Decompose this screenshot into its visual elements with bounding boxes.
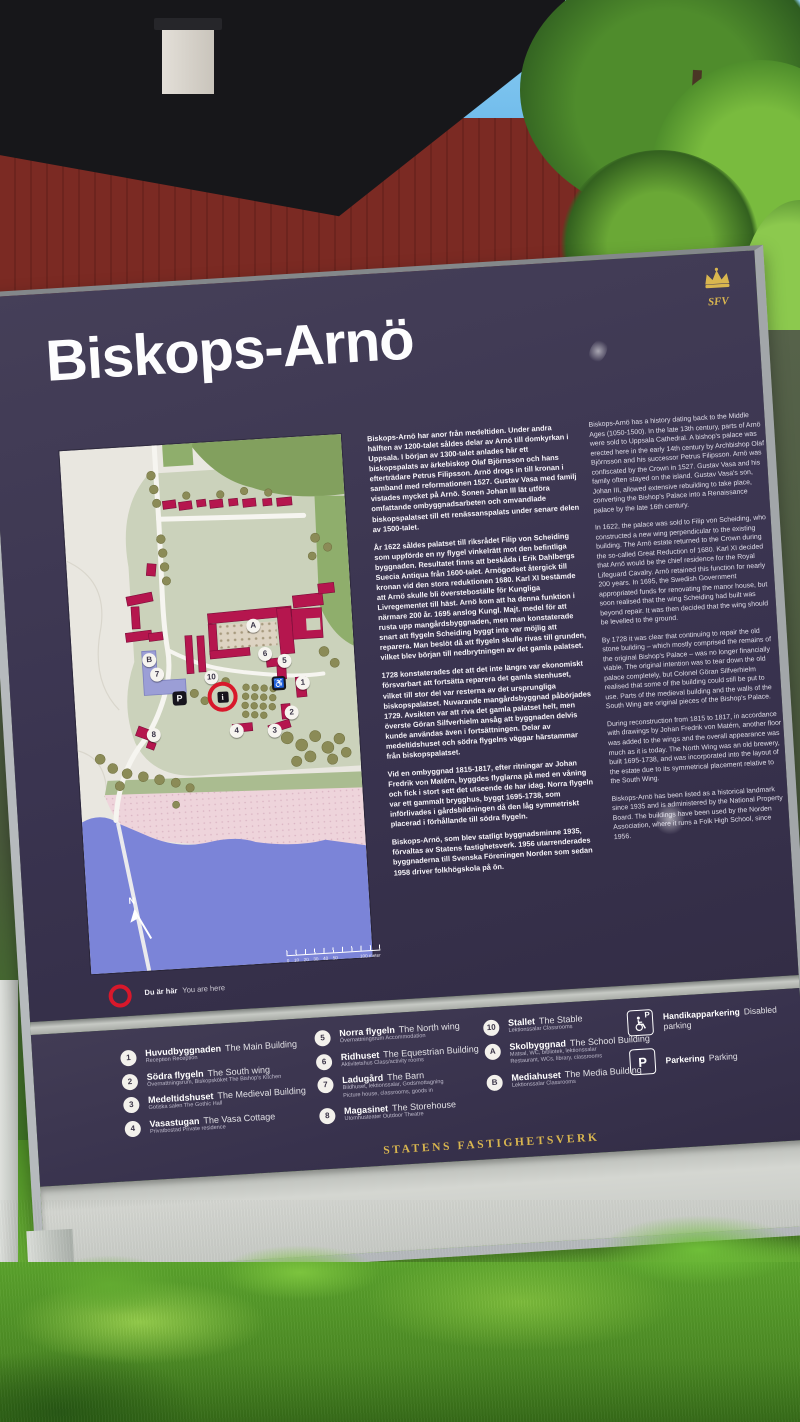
chimney-cap	[154, 18, 222, 30]
compass-n-label: N	[128, 895, 135, 905]
scale-tick-label: 20	[303, 956, 308, 961]
paragraph: Biskops-Arnö har anor från medeltiden. U…	[367, 422, 581, 535]
swedish-text-column: Biskops-Arnö har anor från medeltiden. U…	[367, 422, 602, 886]
legend-item: 5 Norra flygelnThe North wing Övernattni…	[314, 1020, 478, 1047]
grass-tuft	[600, 1215, 800, 1285]
legend-item: A SkolbyggnadThe School Building Matsal,…	[484, 1033, 651, 1068]
chimney	[162, 30, 214, 94]
legend-badge: 3	[123, 1097, 140, 1114]
disabled-parking-row: P HandikapparkeringDisabled parking	[627, 1000, 800, 1037]
scale-tick-label: 50	[333, 955, 338, 960]
photo-of-information-sign: Biskops-Arnö SFV	[0, 0, 800, 1422]
scale-tick-label: 40	[323, 955, 328, 960]
legend-item: 8 MagasinetThe Storehouse Utomhusteater …	[319, 1098, 483, 1125]
legend-column-1: 1 HuvudbyggnadenThe Main Building Recept…	[120, 1038, 308, 1143]
legend-column-2: 5 Norra flygelnThe North wing Övernattni…	[314, 1020, 483, 1132]
paragraph: Biskops-Arnö has a history dating back t…	[588, 410, 767, 516]
grass-tuft	[220, 1245, 380, 1300]
sign-main-panel: Biskops-Arnö SFV	[0, 250, 799, 1022]
legend-badge: A	[484, 1043, 501, 1060]
map-marker: P	[172, 691, 187, 706]
disabled-parking-label: HandikapparkeringDisabled parking	[663, 1003, 800, 1031]
scratch-mark	[585, 336, 611, 366]
map-block: N B 7 8 A 6	[59, 434, 377, 1016]
legend-item: B MediahusetThe Media Building Lektionss…	[486, 1064, 652, 1092]
legend-badge: 4	[124, 1120, 141, 1137]
paragraph: Biskops-Arnö, som blev statligt byggnads…	[392, 825, 602, 878]
english-text-column: Biskops-Arnö has a history dating back t…	[588, 410, 788, 850]
information-sign: Biskops-Arnö SFV	[0, 245, 800, 1282]
parking-row: P ParkeringParking	[629, 1039, 800, 1076]
crown-icon	[699, 266, 735, 294]
legend-badge: B	[486, 1074, 503, 1091]
legend-badge: 10	[483, 1019, 500, 1036]
legend-badge: 1	[120, 1050, 137, 1067]
legend-item: 4 VasastuganThe Vasa Cottage Privatbosta…	[124, 1109, 308, 1138]
grass-tuft	[40, 1255, 180, 1315]
paragraph: During reconstruction from 1815 to 1817,…	[607, 710, 785, 787]
legend-item: 6 RidhusetThe Equestrian Building Aktivi…	[316, 1043, 480, 1070]
paragraph: Vid en ombyggnad 1815-1817, efter ritnin…	[387, 757, 598, 830]
you-are-here-icon	[108, 984, 132, 1008]
scale-tick-label: 30	[313, 956, 318, 961]
legend-badge: 8	[319, 1108, 336, 1125]
legend-badge: 7	[317, 1077, 334, 1094]
paragraph: 1728 konstaterades det att det inte läng…	[381, 659, 594, 762]
scale-tick-label: 0	[287, 958, 290, 963]
parking-legend-column: P HandikapparkeringDisabled parking P Pa…	[627, 1000, 800, 1088]
paragraph: År 1622 såldes palatset till riksrådet F…	[373, 530, 588, 663]
disabled-parking-icon: P	[627, 1009, 655, 1037]
paragraph: In 1622, the palace was sold to Filip vo…	[595, 513, 775, 628]
parking-icon: P	[629, 1048, 657, 1076]
parking-label: ParkeringParking	[665, 1051, 738, 1065]
logo-initials: SFV	[695, 294, 742, 309]
legend-item: 10 StalletThe Stable Lektionssalar Class…	[483, 1009, 649, 1037]
scale-tick-label: 10	[294, 957, 299, 962]
statens-fastighetsverk-wordmark: STATENS FASTIGHETSVERK	[383, 1132, 600, 1157]
sfv-crown-logo: SFV	[693, 265, 741, 309]
legend-badge: 5	[314, 1030, 331, 1047]
map-marker: ♿	[271, 676, 286, 691]
site-map: N B 7 8 A 6	[59, 434, 372, 974]
you-are-here-label: Du är härYou are here	[144, 983, 225, 997]
scale-end-label: 100 meter	[360, 952, 381, 958]
legend-badge: 2	[121, 1073, 138, 1090]
page-title: Biskops-Arnö	[44, 305, 416, 394]
legend-item: 7 LadugårdThe Barn Bildhuset, lektionssa…	[317, 1067, 481, 1102]
paragraph: Biskops-Arnö has been listed as a histor…	[611, 784, 788, 842]
paragraph: By 1728 it was clear that continuing to …	[602, 626, 780, 713]
legend-badge: 6	[316, 1053, 333, 1070]
sign-frame: Biskops-Arnö SFV	[0, 245, 800, 1282]
